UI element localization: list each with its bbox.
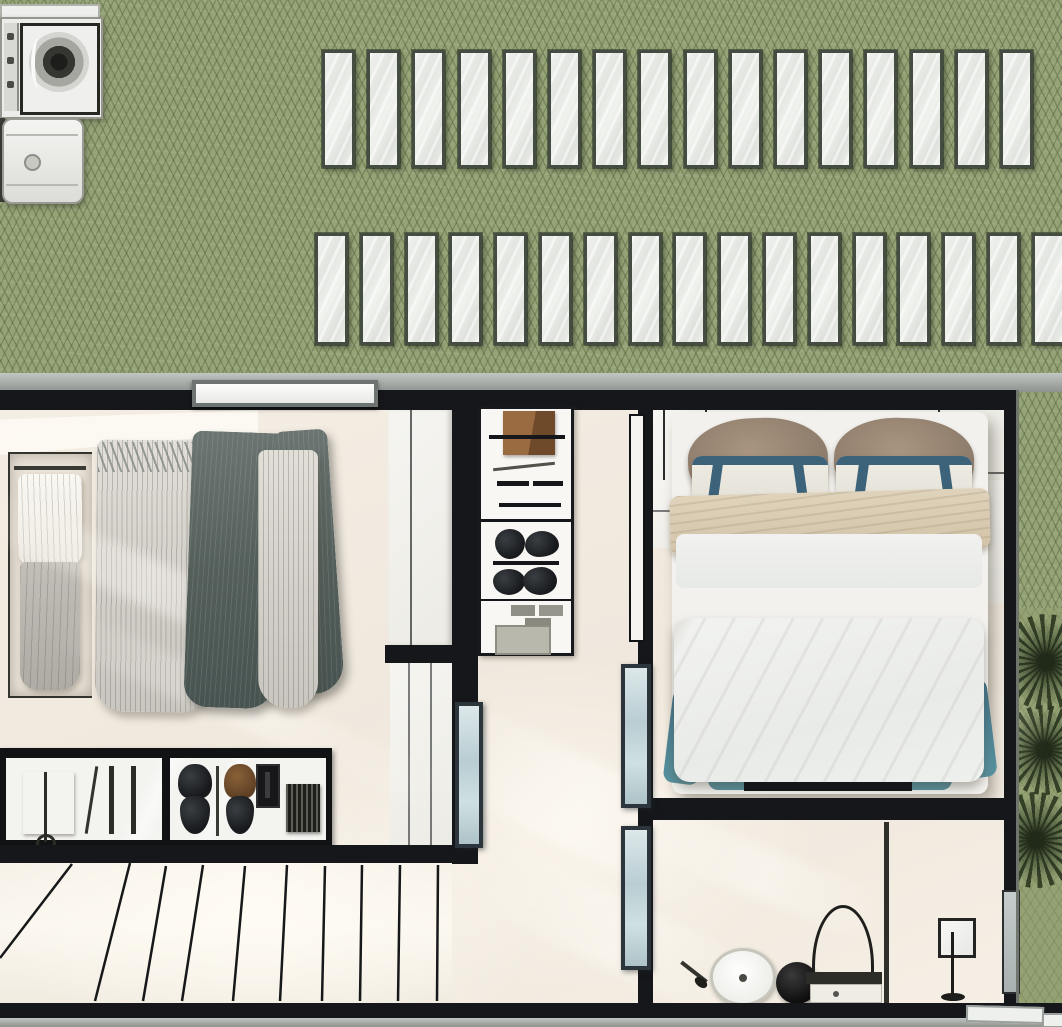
stair-tread-line [182, 865, 203, 1001]
footboard-bench [744, 782, 912, 791]
brush-head [693, 975, 710, 991]
skylight-slat [360, 233, 393, 345]
coiled-belt [525, 531, 559, 557]
folio-strap [44, 772, 47, 842]
skylight-slat [987, 233, 1020, 345]
glass-pivot-door [455, 702, 483, 848]
small-gray-box [511, 605, 535, 616]
skylight-slat [629, 233, 662, 345]
niche-hanging-gray-garment [20, 562, 80, 690]
shelf-bar [497, 481, 529, 486]
skylight-slat [1032, 233, 1062, 345]
pen [85, 766, 99, 834]
stair-tread-line [0, 864, 72, 958]
niche-rail [14, 466, 86, 470]
floor-lamp-stem [951, 932, 954, 996]
skylight-slat [405, 233, 438, 345]
skylight-slat [503, 50, 536, 168]
bathroom-partition [884, 822, 889, 1003]
hanging-pleated-garments-right [258, 450, 318, 708]
brown-bow-tie-bottom [226, 796, 254, 834]
stairwell-wall-top [385, 645, 478, 663]
palm-tree-canopy [1018, 792, 1062, 888]
accessory-display-case [0, 748, 332, 850]
stair-tread-line [233, 866, 245, 1001]
rod-item [109, 766, 114, 834]
skylight-slat [315, 233, 348, 345]
staircase [0, 863, 452, 1003]
wardrobe-door-seam [410, 408, 412, 646]
skylight-row-2 [315, 233, 1062, 339]
coiled-belt [495, 529, 525, 559]
washer-knob [7, 33, 14, 40]
stairwell-wall-bottom [0, 845, 478, 863]
door-threshold [966, 1005, 1044, 1024]
shelf-divider [481, 599, 571, 601]
skylight-slat [367, 50, 400, 168]
skylight-slat [548, 50, 581, 168]
floor-lamp-base [941, 993, 965, 1001]
skylight-slat [808, 233, 841, 345]
shelf-divider [481, 519, 571, 522]
garment-niche [8, 452, 92, 698]
garden-strip-palms [1018, 608, 1062, 1005]
washing-machine [0, 17, 103, 119]
skylight-slat [819, 50, 852, 168]
skylight-slat [718, 233, 751, 345]
drawer-knob [833, 991, 839, 997]
skylight-slat [584, 233, 617, 345]
garden-strip-upper [1018, 390, 1062, 608]
gray-tray [495, 625, 551, 655]
washer-door-frame [20, 23, 100, 115]
skylight-slat [864, 50, 897, 168]
grooming-set [676, 956, 712, 992]
stair-tread-line [360, 865, 362, 1001]
headboard-seam [663, 408, 665, 480]
shelf-rod [493, 561, 559, 565]
skylight-slat [458, 50, 491, 168]
shelf-bar [533, 481, 563, 486]
stair-treads [0, 863, 452, 1003]
skylight-slat [942, 233, 975, 345]
washer-control-strip [4, 23, 19, 111]
palm-tree-canopy [1018, 614, 1062, 710]
door-threshold-small [1042, 1013, 1062, 1027]
niche-hanging-white-garment [18, 474, 82, 566]
stair-balustrade-panels [390, 662, 452, 846]
washer-knob [7, 57, 14, 64]
skylight-slat [910, 50, 943, 168]
skylight-slat [1000, 50, 1033, 168]
garden-edge-line [1016, 390, 1019, 1005]
leather-folio [23, 772, 74, 834]
vanity-desk-top [806, 972, 882, 984]
wardrobe-doors [388, 408, 452, 646]
transom-light-bar [192, 380, 378, 407]
stair-tread-line [95, 863, 130, 1001]
dryer-knob [24, 154, 41, 171]
washer-knob [7, 81, 14, 88]
glass-pivot-door [621, 664, 651, 808]
dryer-seam [6, 184, 78, 186]
stair-tread-line [280, 865, 287, 1001]
glass-pivot-door [621, 826, 651, 970]
pillow-strap [836, 456, 972, 465]
striped-card-case [286, 784, 320, 832]
shelf-bar [499, 503, 561, 507]
shelf-diagonal-item [493, 462, 555, 471]
skylight-slat [897, 233, 930, 345]
floor-plan-render [0, 0, 1062, 1027]
skylight-slat [494, 233, 527, 345]
skylight-slat [322, 50, 355, 168]
dryer-seam [6, 134, 78, 136]
skylight-slat [774, 50, 807, 168]
oval-sink [710, 948, 776, 1006]
bottom-sill [0, 1018, 1062, 1027]
stair-tread-line [322, 866, 325, 1001]
storage-box-brown [503, 411, 555, 455]
case-divider [162, 754, 170, 844]
vanity-drawer [810, 984, 882, 1003]
floor-lamp-head [938, 918, 976, 958]
wallet-clip [265, 772, 270, 798]
small-gray-box [539, 605, 563, 616]
stair-tread-line [437, 865, 438, 1001]
skylight-slat [729, 50, 762, 168]
rod-item [131, 766, 136, 834]
thin-rod [216, 766, 219, 836]
washer-door-handle [31, 38, 47, 88]
brown-bow-tie-top [224, 764, 256, 798]
bedroom-door-leaf [629, 414, 645, 642]
palm-tree-canopy [1018, 705, 1062, 795]
white-duvet [674, 618, 984, 782]
skylight-slat [673, 233, 706, 345]
skylight-row-1 [322, 50, 1045, 162]
hallway-shelf-unit [478, 406, 574, 656]
display-case-glass [6, 758, 326, 840]
skylight-slat [684, 50, 717, 168]
skylight-slat [593, 50, 626, 168]
skylight-slat [853, 233, 886, 345]
skylight-slat [412, 50, 445, 168]
black-bow-tie-bottom [180, 796, 210, 834]
sink-drain [739, 974, 747, 982]
skylight-slat [955, 50, 988, 168]
shelf-rod [489, 435, 565, 439]
coiled-belt [523, 567, 557, 595]
balustrade-seam [408, 662, 410, 846]
bedroom-bathroom-wall [638, 798, 1018, 820]
stair-tread-line [143, 866, 166, 1001]
double-bed [672, 412, 988, 794]
coiled-belt [493, 569, 525, 595]
stair-tread-line [398, 865, 400, 1001]
black-bow-tie-top [178, 764, 212, 798]
balustrade-seam [430, 662, 432, 846]
skylight-slat [638, 50, 671, 168]
skylight-slat [449, 233, 482, 345]
dryer [2, 118, 84, 204]
skylight-slat [763, 233, 796, 345]
skylight-slat [539, 233, 572, 345]
bottom-wall [0, 1003, 1062, 1018]
